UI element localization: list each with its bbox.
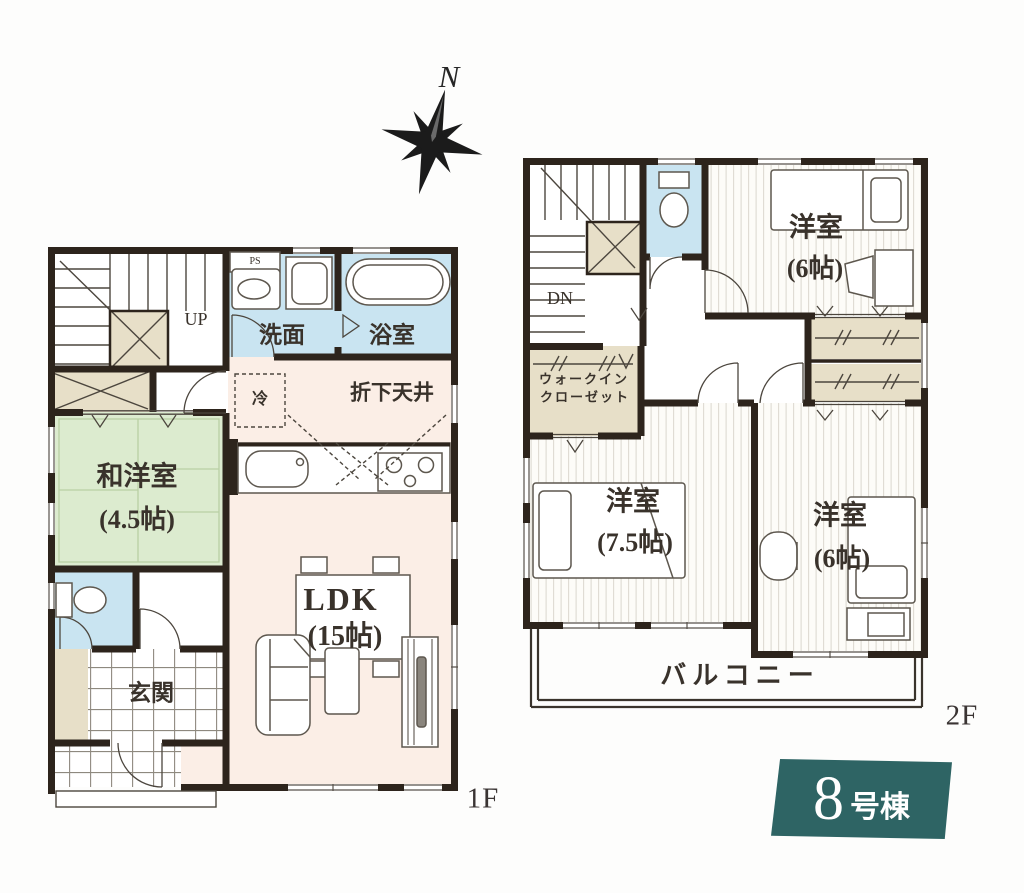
bedroom-right-size: (6帖) [814, 546, 870, 572]
tatami-room-label: 和洋室 [97, 464, 178, 491]
ldk-label: LDK [303, 583, 378, 615]
building-number: 8 [813, 768, 844, 830]
floor-plan-1f: PS UP 洗面 浴室 冷 折下天井 和洋室 (4.5帖) LDK (15帖) … [48, 247, 462, 813]
entrance-label: 玄関 [128, 682, 174, 705]
bedroom-right-label: 洋室 [813, 503, 867, 530]
toilet-2f-fixture [659, 172, 689, 227]
balcony-label: バルコニー [660, 663, 819, 689]
shoe-cabinet [51, 649, 88, 743]
fridge-label: 冷 [252, 392, 268, 408]
floor-1f-label: 1F [467, 783, 500, 816]
stairs-up-label: UP [184, 310, 207, 328]
stairs-dn-label: DN [547, 289, 573, 307]
bedroom-left-label: 洋室 [606, 489, 660, 516]
ps-label: PS [249, 257, 260, 267]
dropped-ceiling-label: 折下天井 [350, 383, 434, 404]
bedroom-top-size: (6帖) [787, 256, 843, 282]
bedroom-left-size: (7.5帖) [597, 530, 673, 556]
ldk-size: (15帖) [308, 623, 383, 651]
bedroom-top-label: 洋室 [789, 215, 843, 242]
kitchen-wall-stub [224, 439, 238, 495]
bathroom-label: 浴室 [369, 324, 415, 347]
desk [875, 250, 913, 306]
floorplan-page: N [0, 0, 1024, 893]
building-number-suffix: 号棟 [850, 772, 910, 826]
kitchen-sink [246, 451, 308, 487]
building-number-banner: 8 号棟 [771, 759, 952, 839]
kitchen [238, 443, 450, 493]
sofa [256, 635, 310, 735]
low-table [325, 648, 359, 714]
floor-2f-label: 2F [946, 700, 979, 733]
wic-label-line2: クローゼット [540, 391, 630, 404]
floor-plan-2f: DN 洋室 (6帖) ウォークイン クローゼット 洋室 (7.5帖) 洋室 (6… [523, 158, 933, 733]
compass-rose-icon [377, 84, 487, 196]
tatami-room-size: (4.5帖) [99, 507, 175, 533]
chair [845, 256, 873, 298]
porch-step [56, 791, 216, 807]
washroom-label: 洗面 [259, 324, 305, 347]
chair [760, 532, 797, 580]
wic-label-line1: ウォークイン [539, 373, 629, 386]
